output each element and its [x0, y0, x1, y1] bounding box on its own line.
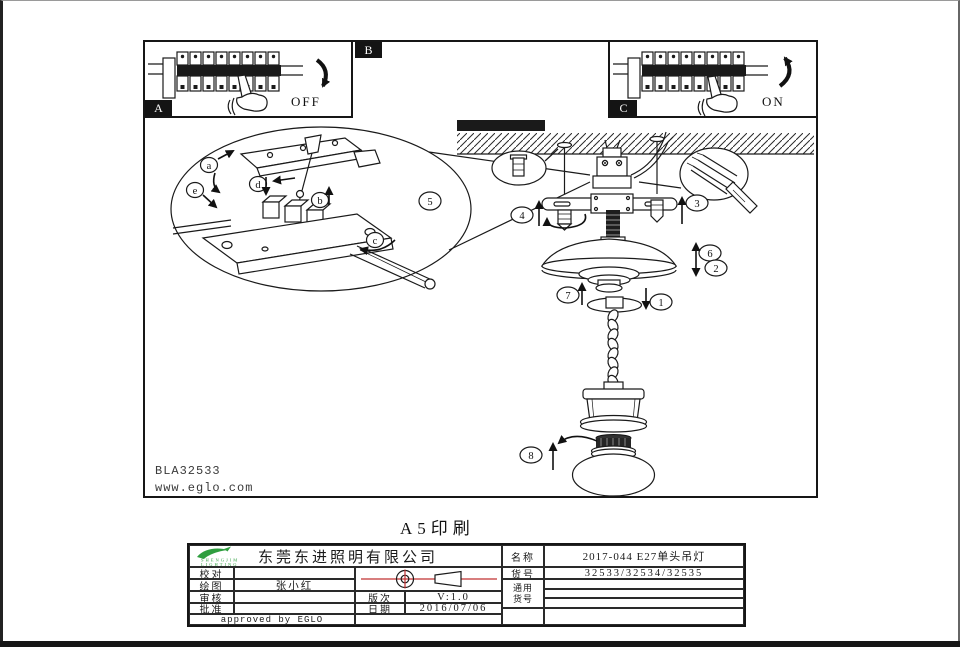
approve-value: [234, 603, 355, 614]
callout-c: c: [367, 233, 384, 248]
title-block: SHENGJIM LIGHTING 东莞东进照明有限公司 校对 绘图 张小红 审…: [187, 543, 746, 627]
check-value: [234, 567, 355, 579]
generic-item-label: 通用 货号: [502, 579, 544, 608]
threaded-nipple: [601, 210, 625, 241]
breaker-on-illustration: ON: [610, 42, 816, 116]
svg-text:1: 1: [658, 298, 663, 309]
on-label: ON: [762, 94, 785, 109]
date-value: 2016/07/06: [405, 603, 502, 614]
off-label: OFF: [291, 94, 321, 109]
check-label: 校对: [189, 567, 234, 579]
svg-text:8: 8: [528, 451, 533, 462]
generic-item-row-2: [544, 589, 744, 598]
approved-note: approved by EGLO: [189, 614, 355, 625]
item-value: 32533/32534/32535: [544, 567, 744, 579]
callout-6: 6: [699, 245, 721, 261]
website-text: www.eglo.com: [155, 481, 253, 495]
panel-a: OFF: [143, 40, 353, 118]
canopy: [542, 239, 676, 292]
callout-3: 3: [682, 195, 708, 224]
company-name: 东莞东进照明有限公司: [258, 546, 438, 567]
date-label: 日期: [355, 603, 405, 614]
ceiling-beam: [457, 120, 545, 131]
svg-text:2: 2: [713, 264, 718, 275]
light-bulb: [573, 435, 655, 497]
panel-b-tab: B: [355, 42, 382, 58]
svg-text:4: 4: [519, 211, 525, 222]
instruction-sheet-page: a e d b: [0, 0, 960, 647]
draw-label: 绘图: [189, 579, 234, 591]
ceiling: [457, 120, 814, 154]
callout-5: 5: [419, 192, 441, 210]
revision-value: V:1.0: [405, 591, 502, 603]
bottom-left-empty: [502, 608, 544, 625]
breaker-off-illustration: OFF: [145, 42, 351, 116]
name-label: 名称: [502, 545, 544, 567]
svg-text:LIGHTING: LIGHTING: [201, 562, 239, 566]
off-arrow: [317, 60, 326, 86]
ceiling-hatch: [457, 133, 814, 154]
panel-c: ON: [608, 40, 818, 118]
lamp-socket: [581, 382, 647, 432]
pendant-cord: [606, 308, 620, 389]
on-arrow: [780, 58, 789, 86]
generic-item-row-3: [544, 598, 744, 608]
generic-item-row-1: [544, 579, 744, 589]
draw-value: 张小红: [234, 579, 355, 591]
company-logo: SHENGJIM LIGHTING: [194, 546, 244, 566]
scan-bottom-edge: [0, 641, 960, 647]
review-value: [234, 591, 355, 603]
revision-label: 版次: [355, 591, 405, 603]
svg-text:d: d: [255, 180, 261, 191]
svg-text:3: 3: [694, 199, 699, 210]
callout-1: 1: [646, 288, 672, 310]
item-label: 货号: [502, 567, 544, 579]
projection-symbol-cell: [355, 567, 502, 591]
projection-symbol: [359, 568, 499, 590]
review-label: 审核: [189, 591, 234, 603]
approved-empty: [355, 614, 502, 625]
svg-text:a: a: [207, 161, 212, 172]
svg-text:c: c: [373, 236, 378, 247]
callout-7: 7: [557, 284, 582, 305]
expansion-anchor-right: [651, 200, 663, 222]
svg-text:b: b: [317, 196, 322, 207]
drawing-code: BLA32533: [155, 464, 221, 478]
bottom-right-empty: [544, 608, 744, 625]
panel-c-tab: C: [610, 100, 637, 116]
svg-text:5: 5: [427, 197, 432, 208]
svg-text:7: 7: [565, 291, 570, 302]
panel-a-tab: A: [145, 100, 172, 116]
svg-text:e: e: [193, 186, 198, 197]
company-cell: SHENGJIM LIGHTING 东莞东进照明有限公司: [189, 545, 502, 567]
svg-text:6: 6: [707, 249, 712, 260]
approve-label: 批准: [189, 603, 234, 614]
print-note: A5印刷: [400, 514, 475, 539]
name-value: 2017-044 E27单头吊灯: [544, 545, 744, 567]
